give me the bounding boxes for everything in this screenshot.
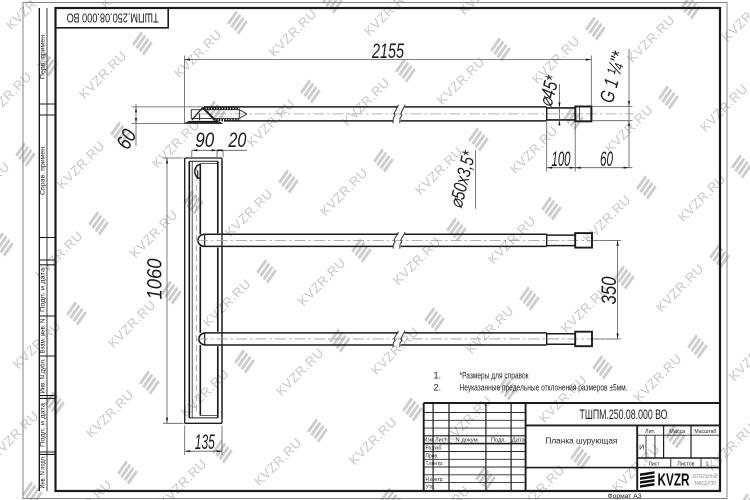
svg-text:Подп. и дата: Подп. и дата [41, 267, 47, 312]
svg-text:Неуказанные предельные отклоне: Неуказанные предельные отклонения размер… [460, 383, 628, 393]
svg-text:Масштаб: Масштаб [694, 429, 716, 435]
svg-text:Подп. и дата: Подп. и дата [41, 402, 47, 447]
svg-text:Инв. N дубл.: Инв. N дубл. [41, 358, 47, 393]
svg-text:Утв.: Утв. [426, 485, 436, 491]
svg-text:Лист: Лист [649, 461, 660, 467]
svg-text:Н.контр.: Н.контр. [426, 477, 444, 483]
svg-text:350: 350 [598, 276, 621, 304]
svg-text:KVZR: KVZR [658, 470, 690, 490]
svg-text:Взам. инв. N: Взам. инв. N [41, 319, 47, 354]
svg-text:2.: 2. [434, 383, 442, 393]
svg-text:Т.контр.: Т.контр. [426, 461, 444, 467]
svg-text:20: 20 [228, 129, 247, 152]
svg-text:1060: 1060 [144, 258, 167, 299]
svg-text:1: 1 [706, 461, 709, 467]
svg-text:Перв. примен.: Перв. примен. [41, 33, 47, 79]
svg-text:*Размеры для справок: *Размеры для справок [460, 370, 529, 380]
svg-text:Разраб.: Разраб. [426, 446, 443, 452]
svg-text:100: 100 [552, 148, 571, 171]
svg-text:Подп.: Подп. [491, 437, 506, 443]
svg-text:2155: 2155 [371, 40, 404, 63]
svg-text:Лит.: Лит. [645, 429, 655, 435]
svg-text:Дата: Дата [512, 437, 526, 443]
svg-text:Пров.: Пров. [426, 453, 439, 459]
svg-text:135: 135 [195, 431, 215, 454]
svg-text:Формат А3: Формат А3 [608, 493, 642, 500]
svg-text:1.: 1. [434, 370, 442, 380]
svg-text:ТШПМ.250.08.000 ВО: ТШПМ.250.08.000 ВО [66, 11, 158, 25]
svg-text:Масса: Масса [669, 429, 685, 435]
svg-text:Инв. N подл.: Инв. N подл. [41, 455, 47, 488]
svg-text:Лист: Лист [435, 437, 447, 443]
svg-text:Планка шурующая: Планка шурующая [545, 436, 617, 446]
svg-text:И: И [639, 444, 644, 451]
svg-text:60: 60 [600, 148, 613, 171]
svg-text:ТШПМ.250.08.000 ВО: ТШПМ.250.08.000 ВО [580, 407, 668, 422]
svg-text:Изм: Изм [424, 437, 433, 443]
svg-text:КОТЕЛЬНЫЙ: КОТЕЛЬНЫЙ [693, 472, 718, 480]
svg-text:90: 90 [195, 129, 214, 152]
svg-text:N докум.: N докум. [455, 437, 479, 443]
svg-text:Справ. примен.: Справ. примен. [41, 145, 47, 195]
svg-text:Листов: Листов [677, 461, 694, 467]
svg-text:ЗАВОД РЭП: ЗАВОД РЭП [694, 481, 716, 487]
